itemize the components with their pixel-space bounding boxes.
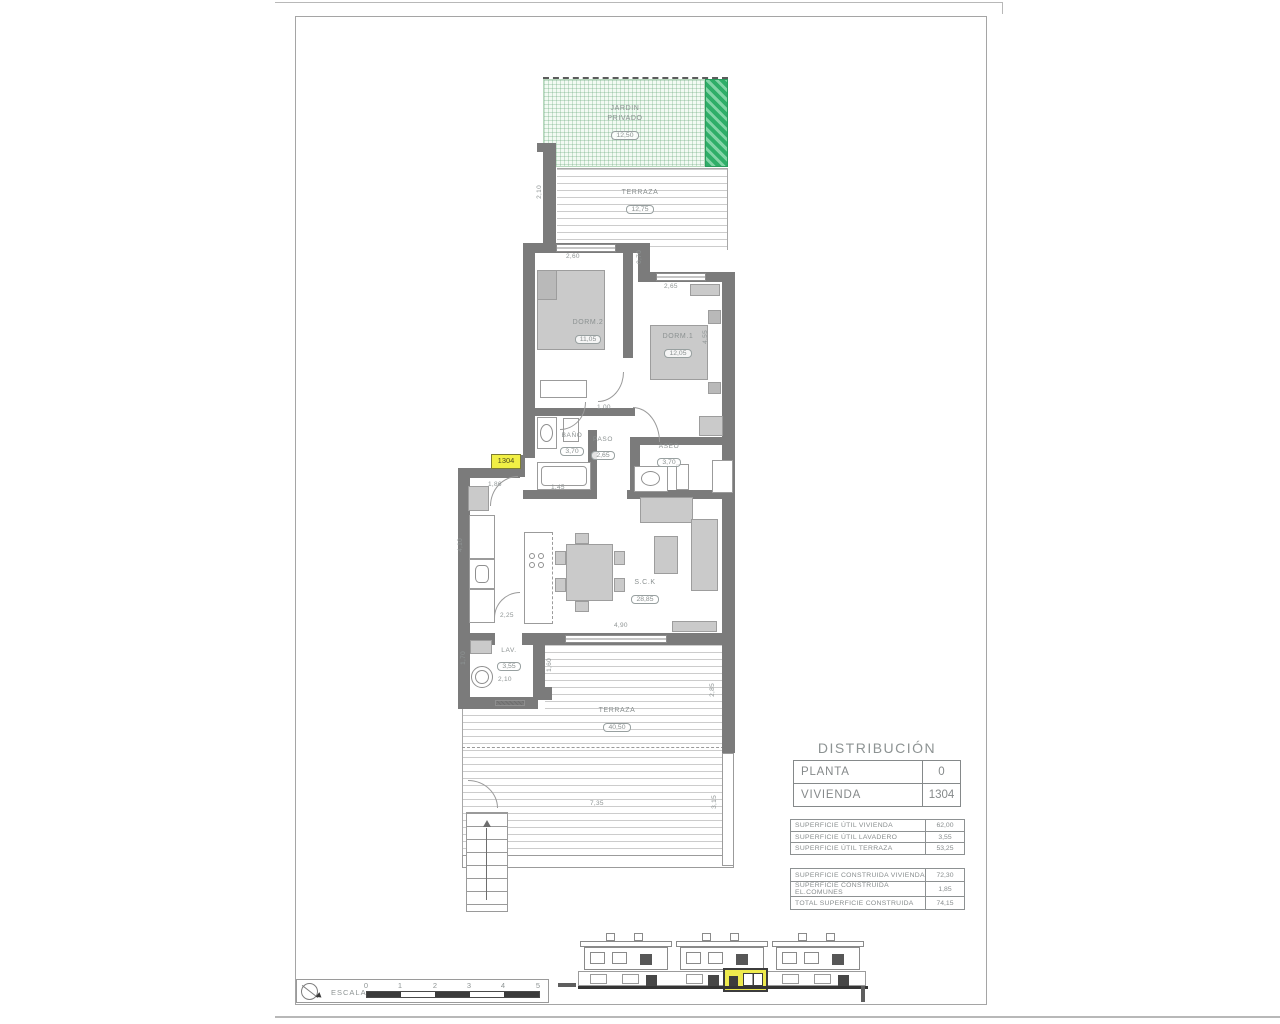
- stairs-direction-line: [486, 828, 487, 900]
- garden-hedge-strip: [705, 79, 728, 167]
- info-label: VIVIENDA: [794, 784, 922, 806]
- upper-door-shadow: [832, 954, 844, 965]
- dimension-label: 1,86: [488, 481, 502, 488]
- dimension-label: 7,35: [590, 800, 604, 807]
- built-surface-table: SUPERFICIE CONSTRUIDA VIVIENDA 72,30 SUP…: [790, 868, 965, 910]
- dimension-label: 1,45: [551, 484, 565, 491]
- chair: [555, 578, 566, 592]
- wardrobe-dorm1: [690, 284, 720, 296]
- sofa-right: [691, 519, 718, 591]
- unit-window: [743, 973, 763, 986]
- dimension-label: 1,60: [546, 658, 553, 672]
- room-area: 3,70: [657, 458, 680, 467]
- chair: [575, 533, 589, 544]
- ground-step: [861, 986, 865, 1002]
- stairs-direction-arrow: [483, 820, 491, 827]
- dining-table: [566, 544, 613, 601]
- surface-value: 53,25: [925, 843, 964, 854]
- dimension-label: 4,55: [702, 330, 709, 344]
- window-dorm1: [656, 273, 706, 281]
- chimney: [730, 933, 739, 941]
- window: [612, 952, 627, 964]
- scale-segment: [401, 992, 435, 997]
- ground-line: [578, 986, 868, 989]
- scale-tick: 1: [398, 981, 402, 990]
- fridge: [468, 486, 489, 511]
- kitchen-sink-bowl: [475, 565, 489, 583]
- chair: [575, 601, 589, 612]
- wall-segment: [523, 408, 535, 458]
- cabinet-aseo: [712, 460, 733, 493]
- exterior-stairs: [466, 812, 508, 912]
- surface-value: 74,15: [925, 897, 964, 909]
- table-row: VIVIENDA 1304: [794, 783, 960, 806]
- dimension-label: 2,25: [500, 612, 514, 619]
- room-area: 40,50: [603, 723, 630, 732]
- chair: [614, 551, 625, 565]
- scale-segment: [470, 992, 504, 997]
- wall-segment: [523, 490, 597, 499]
- surface-label: SUPERFICIE CONSTRUIDA EL.COMUNES: [791, 882, 925, 896]
- room-name: PASO: [582, 435, 624, 444]
- scale-segment: [504, 992, 539, 997]
- laundry-vent: [495, 700, 525, 706]
- window: [782, 952, 797, 964]
- room-name: DORM.2: [556, 318, 620, 328]
- kitchen-island: [524, 532, 553, 624]
- chair: [555, 551, 566, 565]
- dimension-label: 2,60: [566, 253, 580, 260]
- chimney: [826, 933, 835, 941]
- dimension-label: 4,10: [457, 538, 464, 552]
- room-label-aseo: ASEO 3,70: [648, 442, 690, 469]
- useful-surface-table: SUPERFICIE ÚTIL VIVIENDA 62,00 SUPERFICI…: [790, 819, 965, 855]
- window: [686, 974, 703, 984]
- room-name: JARDIN PRIVADO: [593, 104, 657, 124]
- scale-tick: 2: [433, 981, 437, 990]
- north-compass-icon: [301, 983, 318, 1000]
- scale-tick: 4: [501, 981, 505, 990]
- cooktop-burner: [529, 562, 535, 568]
- upper-door-shadow: [640, 954, 652, 965]
- distribution-title: DISTRIBUCIÓN: [793, 740, 961, 756]
- room-area: 28,85: [631, 595, 658, 604]
- room-label-jardin: JARDIN PRIVADO 12,50: [593, 104, 657, 142]
- nightstand-dorm1: [708, 382, 721, 394]
- sofa-back: [640, 497, 693, 523]
- info-value: 0: [922, 761, 960, 783]
- wall-segment: [538, 687, 552, 700]
- room-area: 11,05: [575, 335, 602, 344]
- surface-value: 62,00: [925, 820, 964, 831]
- room-area: 3,55: [497, 662, 520, 671]
- unit-number-tag: 1304: [491, 454, 521, 469]
- kitchen-counter: [469, 589, 495, 623]
- sink-bowl-aseo: [641, 471, 660, 486]
- dimension-label: 2,65: [664, 283, 678, 290]
- kitchen-counter: [469, 515, 495, 559]
- desk-dorm2: [540, 380, 587, 398]
- table-row: SUPERFICIE CONSTRUIDA EL.COMUNES 1,85: [791, 881, 964, 896]
- door-shadow: [708, 975, 719, 986]
- room-area: 12,50: [611, 131, 638, 140]
- table-row: PLANTA 0: [794, 761, 960, 783]
- room-area: 2,65: [591, 451, 614, 460]
- room-area: 12,75: [626, 205, 653, 214]
- window: [590, 974, 607, 984]
- dimension-label: 2,10: [498, 676, 512, 683]
- sideboard: [672, 621, 717, 632]
- dimension-label: 4,90: [614, 622, 628, 629]
- room-name: TERRAZA: [582, 706, 652, 716]
- door-shadow: [838, 975, 849, 986]
- window: [708, 952, 723, 964]
- property-boundary-line: [543, 77, 728, 79]
- room-name: LAV.: [486, 646, 532, 655]
- wall-segment: [543, 150, 556, 253]
- info-label: PLANTA: [794, 761, 922, 783]
- terrace-covered-boundary: [462, 747, 734, 748]
- window: [686, 952, 701, 964]
- sliding-door-living: [565, 635, 667, 643]
- scale-tick: 5: [536, 981, 540, 990]
- room-name: DORM.1: [646, 332, 710, 342]
- scale-tick: 3: [467, 981, 471, 990]
- plan-sheet: 1304 JARDIN PRIVADO 12,50 TERRAZA 12,75 …: [0, 0, 1280, 1024]
- scale-segment: [435, 992, 470, 997]
- window: [622, 974, 639, 984]
- room-name: TERRAZA: [600, 188, 680, 198]
- window: [804, 952, 819, 964]
- bathtub-inner: [541, 466, 587, 486]
- dimension-label: 3,15: [711, 795, 718, 809]
- room-label-terraza-inf: TERRAZA 40,50: [582, 706, 652, 734]
- wall-segment: [623, 253, 633, 358]
- sheet-outer-bottom-line: [275, 1016, 1280, 1018]
- room-name: ASEO: [648, 442, 690, 451]
- cooktop-burner: [538, 562, 544, 568]
- wall-segment: [722, 645, 735, 753]
- pillow-dorm2: [537, 270, 557, 300]
- table-row: SUPERFICIE ÚTIL TERRAZA 53,25: [791, 842, 964, 854]
- surface-value: 3,55: [925, 832, 964, 843]
- cooktop-burner: [529, 553, 535, 559]
- ground-line: [558, 983, 576, 987]
- upper-door-shadow: [736, 954, 748, 965]
- room-name: S.C.K: [618, 578, 672, 588]
- room-label-sck: S.C.K 28,85: [618, 578, 672, 606]
- room-label-terraza-sup: TERRAZA 12,75: [600, 188, 680, 216]
- dimension-label: 2,10: [536, 185, 543, 199]
- scale-bar: [366, 991, 540, 998]
- room-label-lav: LAV. 3,55: [486, 646, 532, 673]
- table-row: SUPERFICIE ÚTIL LAVADERO 3,55: [791, 831, 964, 843]
- info-value: 1304: [922, 784, 960, 806]
- surface-label: SUPERFICIE CONSTRUIDA VIVIENDA: [791, 869, 925, 881]
- room-area: 12,05: [664, 349, 691, 358]
- sheet-outer-top-line: [275, 2, 1003, 3]
- table-row: SUPERFICIE CONSTRUIDA VIVIENDA 72,30: [791, 869, 964, 881]
- room-label-dorm1: DORM.1 12,05: [646, 332, 710, 360]
- room-label-paso: PASO 2,65: [582, 435, 624, 462]
- room-area: 3,70: [560, 447, 583, 456]
- room-label-dorm2: DORM.2 11,05: [556, 318, 620, 346]
- window: [590, 952, 605, 964]
- surface-value: 72,30: [925, 869, 964, 881]
- surface-label: SUPERFICIE ÚTIL LAVADERO: [791, 832, 925, 843]
- surface-label: SUPERFICIE ÚTIL TERRAZA: [791, 843, 925, 854]
- cooktop-burner: [538, 553, 544, 559]
- window-dorm2: [556, 244, 616, 252]
- surface-label: SUPERFICIE ÚTIL VIVIENDA: [791, 820, 925, 831]
- scale-segment: [367, 992, 401, 997]
- wall-segment: [523, 243, 535, 413]
- shower-aseo: [699, 416, 723, 436]
- chimney: [798, 933, 807, 941]
- nightstand-dorm1: [708, 310, 721, 324]
- table-row: TOTAL SUPERFICIE CONSTRUIDA 74,15: [791, 896, 964, 909]
- window: [782, 974, 799, 984]
- surface-label: TOTAL SUPERFICIE CONSTRUIDA: [791, 897, 925, 909]
- sheet-outer-corner: [1002, 2, 1003, 14]
- terrace-right-parapet: [722, 753, 734, 866]
- dimension-label: 0,70: [636, 250, 643, 264]
- dimension-label: 1,70: [460, 651, 467, 665]
- surface-value: 1,85: [925, 882, 964, 896]
- scale-tick: 0: [364, 981, 368, 990]
- coffee-table: [654, 536, 678, 574]
- dimension-label: 1,00: [597, 404, 611, 411]
- chimney: [702, 933, 711, 941]
- dimension-label: 2,85: [709, 683, 716, 697]
- table-row: SUPERFICIE ÚTIL VIVIENDA 62,00: [791, 820, 964, 831]
- door-shadow: [646, 975, 657, 986]
- wall-segment: [722, 272, 735, 645]
- distribution-info-table: PLANTA 0 VIVIENDA 1304: [793, 760, 961, 807]
- chimney: [606, 933, 615, 941]
- window: [814, 974, 831, 984]
- chimney: [634, 933, 643, 941]
